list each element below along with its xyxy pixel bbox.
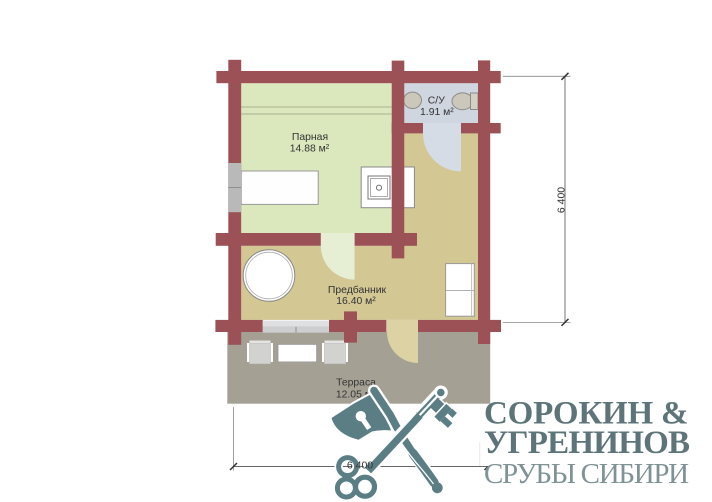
svg-text:14.88 м²: 14.88 м² — [290, 144, 330, 155]
svg-text:6 400: 6 400 — [347, 460, 373, 472]
svg-text:СРУБЫ СИБИРИ: СРУБЫ СИБИРИ — [484, 458, 689, 490]
svg-text:С/У: С/У — [428, 95, 445, 106]
svg-text:16.40 м²: 16.40 м² — [336, 296, 376, 307]
svg-text:Парная: Парная — [292, 132, 328, 143]
svg-text:Предбанник: Предбанник — [328, 284, 387, 296]
svg-text:6 400: 6 400 — [556, 187, 568, 213]
svg-text:УГРЕНИНОВ: УГРЕНИНОВ — [484, 425, 690, 461]
svg-text:1.91 м²: 1.91 м² — [420, 107, 454, 118]
